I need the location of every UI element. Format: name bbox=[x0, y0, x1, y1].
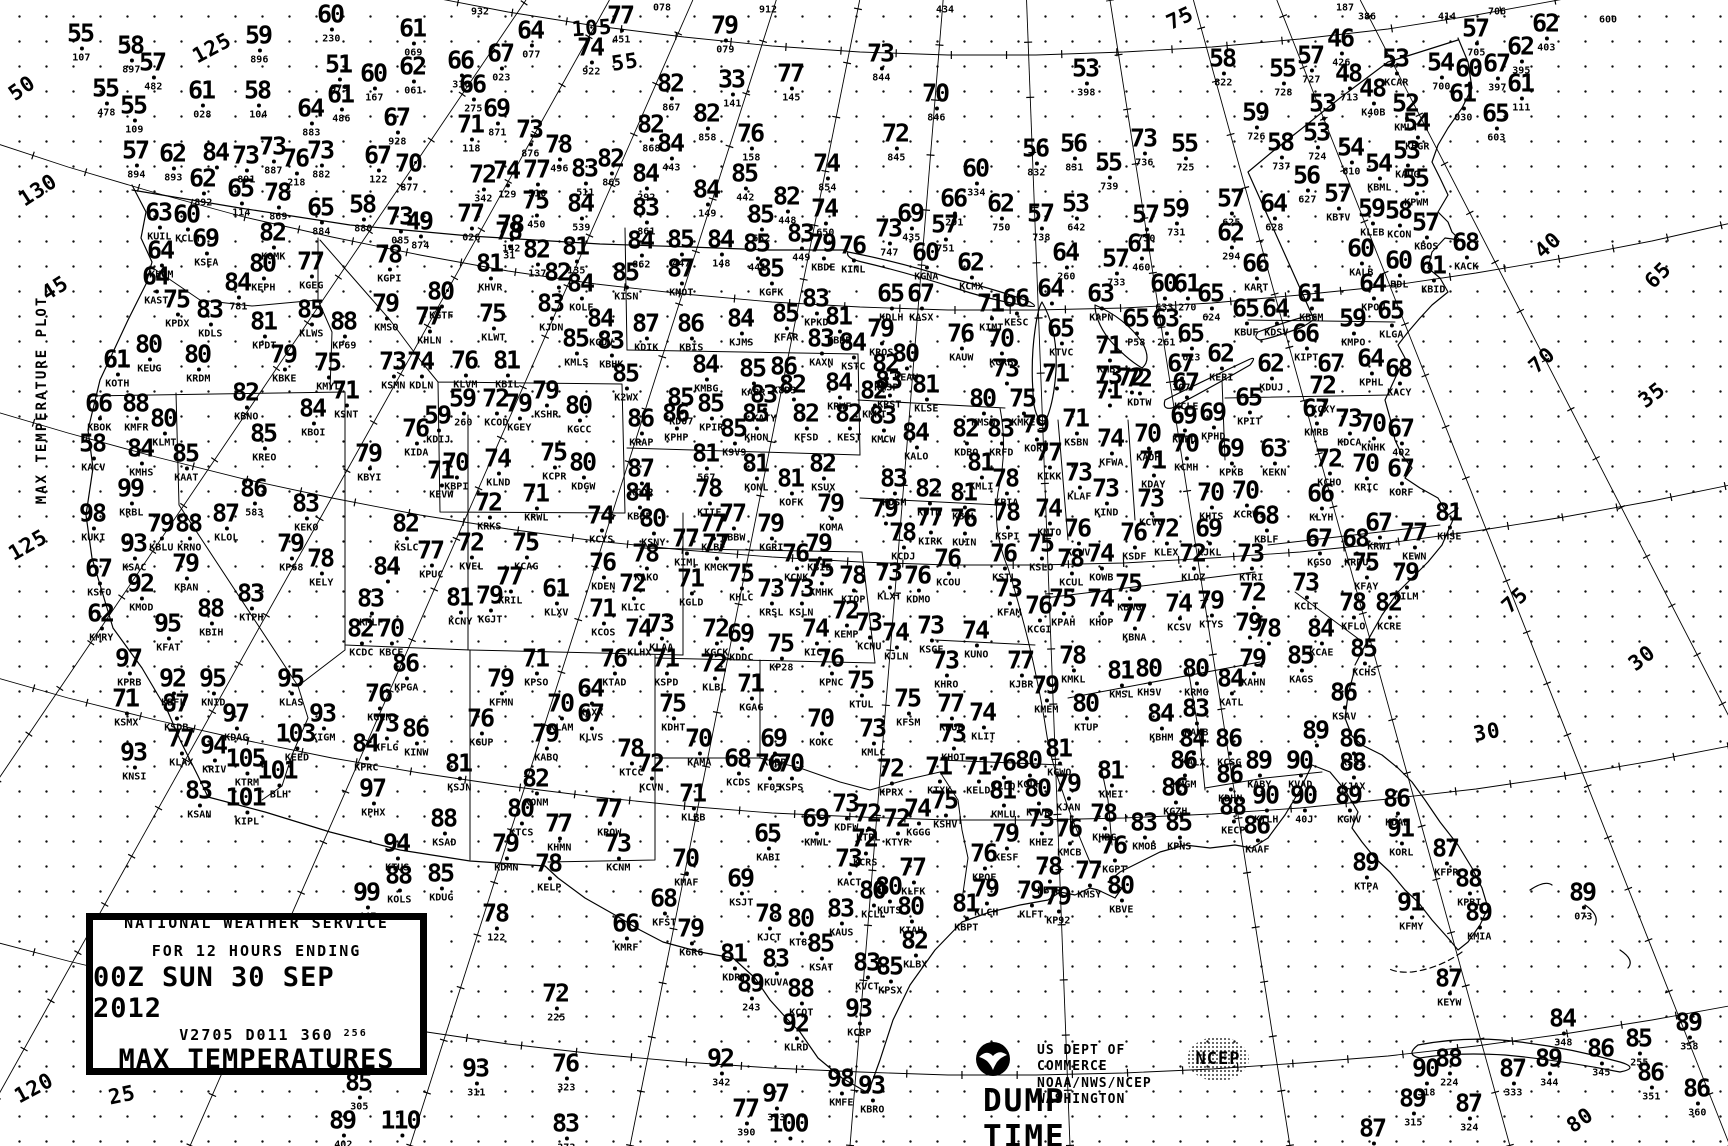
station: 88KPBI bbox=[1455, 866, 1481, 891]
station: 87KDIK bbox=[632, 311, 658, 336]
station-id: KGGG bbox=[906, 828, 930, 839]
station-max-temp: 79 bbox=[711, 13, 737, 38]
station-id: 877 bbox=[400, 183, 418, 194]
station-id: KLGA bbox=[1379, 330, 1403, 341]
station-id: KRBL bbox=[119, 508, 143, 519]
station-id: 727 bbox=[1302, 75, 1320, 86]
station-id: KGRI bbox=[759, 543, 783, 554]
station: 53KCAR bbox=[1382, 46, 1408, 71]
station-max-temp: 77 bbox=[523, 157, 549, 182]
station-max-temp: 54 bbox=[1403, 110, 1429, 135]
station: 68KACY bbox=[1385, 356, 1411, 381]
station-id: 344 bbox=[1540, 1078, 1558, 1089]
station-max-temp: 83 bbox=[185, 778, 211, 803]
station-max-temp: 79 bbox=[1054, 771, 1080, 796]
station-max-temp: 93 bbox=[120, 531, 146, 556]
station-max-temp: 76 bbox=[989, 750, 1015, 775]
station-max-temp: 79 bbox=[757, 511, 783, 536]
station-max-temp: 92 bbox=[159, 666, 185, 691]
station: 73KFAM bbox=[995, 576, 1021, 601]
station-max-temp: 93 bbox=[845, 996, 871, 1021]
station: 54700 bbox=[1427, 50, 1453, 75]
station: 82865 bbox=[597, 146, 623, 171]
station-id: KFST bbox=[652, 918, 676, 929]
station: 82KOMK bbox=[259, 220, 285, 245]
station-dot bbox=[788, 1137, 792, 1141]
station-max-temp: 84 bbox=[693, 177, 719, 202]
station-id: KMSO bbox=[374, 323, 398, 334]
station: 84781 bbox=[224, 270, 250, 295]
station: 92KLRD bbox=[782, 1011, 808, 1036]
station-max-temp: 65 bbox=[307, 195, 333, 220]
station: 66275 bbox=[459, 72, 485, 97]
station-id: 725 bbox=[1176, 163, 1194, 174]
station-id: 073 bbox=[1574, 912, 1592, 923]
station: 58822 bbox=[1209, 46, 1235, 71]
station: 68KBLF bbox=[1252, 503, 1278, 528]
station: 83KMOB bbox=[1130, 810, 1156, 835]
station: 95KNID bbox=[199, 666, 225, 691]
station-max-temp: 91 bbox=[1387, 816, 1413, 841]
station-max-temp: 69 bbox=[1195, 516, 1221, 541]
station: 82KCDC bbox=[347, 616, 373, 641]
station: 82KOTM bbox=[915, 476, 941, 501]
station: 61111 bbox=[1507, 71, 1533, 96]
station: 72 bbox=[1239, 580, 1265, 605]
station-id: KEUG bbox=[137, 364, 161, 375]
station-max-temp: 74 bbox=[969, 700, 995, 725]
station-id: 460 bbox=[1132, 263, 1150, 274]
station: 64260 bbox=[1052, 240, 1078, 265]
station-max-temp: 72 bbox=[1239, 580, 1265, 605]
station-max-temp: 61 bbox=[1127, 231, 1153, 256]
station-max-temp: 75 bbox=[727, 561, 753, 586]
station-id: BLH bbox=[270, 790, 288, 801]
station: 80KEUG bbox=[135, 332, 161, 357]
station: 85KAGS bbox=[1287, 643, 1313, 668]
station-id: KCDS bbox=[726, 778, 750, 789]
station: 55KPWM bbox=[1402, 166, 1428, 191]
station: 77KRUE bbox=[937, 691, 963, 716]
station-id: KBYI bbox=[357, 473, 381, 484]
station-id: KJCT bbox=[757, 933, 781, 944]
station: 62403 bbox=[1532, 11, 1558, 36]
station: 64883 bbox=[297, 96, 323, 121]
station: 76KPOE bbox=[970, 841, 996, 866]
station-id: KDUJ bbox=[1259, 383, 1283, 394]
station: 84KJMS bbox=[727, 306, 753, 331]
station-max-temp: 55 bbox=[1402, 166, 1428, 191]
station-max-temp: 86 bbox=[677, 311, 703, 336]
station-max-temp: 79 bbox=[172, 551, 198, 576]
station: 89073 bbox=[1569, 880, 1595, 905]
station-id: KHOP bbox=[1089, 618, 1113, 629]
station-id: KJDN bbox=[539, 323, 563, 334]
station: 64KPHL bbox=[1357, 346, 1383, 371]
station: 79KFMN bbox=[487, 666, 513, 691]
station-max-temp: 97 bbox=[222, 701, 248, 726]
station-id: KRWL bbox=[524, 513, 548, 524]
station-max-temp: 83 bbox=[827, 896, 853, 921]
side-label-text: MAX TEMPERATURE PLOT bbox=[34, 296, 50, 505]
station-max-temp: 62 bbox=[957, 250, 983, 275]
station-max-temp: 64 bbox=[297, 96, 323, 121]
station-max-temp: 79 bbox=[147, 511, 173, 536]
station-max-temp: 70 bbox=[395, 151, 421, 176]
station-id: KCVN bbox=[639, 783, 663, 794]
station-max-temp: 74 bbox=[1087, 541, 1113, 566]
station: 73736 bbox=[1130, 126, 1156, 151]
station-id: KAGS bbox=[1289, 675, 1313, 686]
station: 73KRSL bbox=[757, 576, 783, 601]
station: 89 bbox=[1302, 718, 1328, 743]
station-id: KCRE bbox=[1377, 622, 1401, 633]
station-max-temp: 62 bbox=[87, 601, 113, 626]
station: 93311 bbox=[462, 1056, 488, 1081]
station-max-temp: 57 bbox=[931, 212, 957, 237]
station-id: KMRY bbox=[89, 633, 113, 644]
station: 59KMPO bbox=[1339, 306, 1365, 331]
station: 74KLIT bbox=[969, 700, 995, 725]
station-max-temp: 64 bbox=[147, 238, 173, 263]
station-id: KISN bbox=[614, 292, 638, 303]
station-id: 351 bbox=[1642, 1092, 1660, 1103]
station-max-temp: 83 bbox=[237, 581, 263, 606]
station-id: KSDF bbox=[1122, 552, 1146, 563]
station-max-temp: 79 bbox=[1392, 560, 1418, 585]
station-id: KAAT bbox=[174, 473, 198, 484]
station-max-temp: 75 bbox=[1049, 586, 1075, 611]
station: 79KOMA bbox=[817, 491, 843, 516]
station: 61028 bbox=[188, 78, 214, 103]
station-id: KAKO bbox=[634, 573, 658, 584]
station-id: KCNM bbox=[606, 863, 630, 874]
station: 85442 bbox=[731, 161, 757, 186]
station-id: KDMN bbox=[494, 863, 518, 874]
station: 110 bbox=[380, 1108, 419, 1133]
station-id: KBID bbox=[1421, 285, 1445, 296]
station-id: 486 bbox=[332, 114, 350, 125]
station-max-temp: 89 bbox=[1569, 880, 1595, 905]
station: 59KDIJ bbox=[424, 403, 450, 428]
station: 81KBIL bbox=[493, 348, 519, 373]
station: 83KJDN bbox=[537, 291, 563, 316]
station-id: 122 bbox=[487, 933, 505, 944]
station: 86360 bbox=[1683, 1076, 1709, 1101]
station-id: 345 bbox=[1592, 1068, 1610, 1079]
station-id: KPUC bbox=[419, 570, 443, 581]
station-id: KLOL bbox=[214, 533, 238, 544]
station-id: KPIT bbox=[1237, 417, 1261, 428]
station-id: 225 bbox=[547, 1013, 565, 1024]
station: 61KLXV bbox=[542, 576, 568, 601]
station-max-temp: 73 bbox=[875, 560, 901, 585]
station-max-temp: 85 bbox=[747, 202, 773, 227]
station: 73KDCA bbox=[1335, 406, 1361, 431]
station-max-temp: 71 bbox=[977, 291, 1003, 316]
station: 81KMLU bbox=[989, 778, 1015, 803]
station-max-temp: 78 bbox=[375, 242, 401, 267]
station-max-temp: 73 bbox=[867, 41, 893, 66]
station-max-temp: 53 bbox=[1303, 120, 1329, 145]
station-id: 627 bbox=[1298, 195, 1316, 206]
station: 85KISN bbox=[612, 260, 638, 285]
station: 90KVAD bbox=[1286, 748, 1312, 773]
station: 91KFMY bbox=[1397, 890, 1423, 915]
station: 76KSDF bbox=[1120, 520, 1146, 545]
station-max-temp: 82 bbox=[392, 511, 418, 536]
station: 80KRDM bbox=[184, 342, 210, 367]
station-max-temp: 75 bbox=[540, 440, 566, 465]
station: 55478 bbox=[92, 76, 118, 101]
station-max-temp: 79 bbox=[505, 391, 531, 416]
station-id: KREO bbox=[252, 453, 276, 464]
station: 77KRIL bbox=[496, 564, 522, 589]
station-max-temp: 74 bbox=[484, 446, 510, 471]
station-id-label: 706 bbox=[1488, 7, 1506, 18]
station-max-temp: 79 bbox=[1032, 673, 1058, 698]
station-id: KDHT bbox=[661, 723, 685, 734]
station: 89KMIA bbox=[1465, 900, 1491, 925]
station-max-temp: 76 bbox=[782, 541, 808, 566]
station: 60334 bbox=[962, 156, 988, 181]
station-max-temp: 76 bbox=[365, 681, 391, 706]
station: 85KDUG bbox=[427, 861, 453, 886]
station: 65KABI bbox=[754, 821, 780, 846]
station: 76KCNK bbox=[782, 541, 808, 566]
station-max-temp: 81 bbox=[562, 234, 588, 259]
station: 53 bbox=[1309, 91, 1335, 116]
station-max-temp: 76 bbox=[1055, 816, 1081, 841]
station-id: KGNV bbox=[1337, 815, 1361, 826]
station-max-temp: 72 bbox=[469, 162, 495, 187]
station-id: 451 bbox=[612, 35, 630, 46]
station: 60230 bbox=[317, 2, 343, 27]
station-id: KINW bbox=[404, 748, 428, 759]
station-max-temp: 69 bbox=[1217, 436, 1243, 461]
station: 69KDDC bbox=[727, 621, 753, 646]
station-id: 642 bbox=[1067, 223, 1085, 234]
station: 49874 bbox=[406, 209, 432, 234]
station: 72KLBL bbox=[700, 651, 726, 676]
station-max-temp: 83 bbox=[807, 326, 833, 351]
station: 33141 bbox=[718, 67, 744, 92]
station-id: KDLS bbox=[198, 329, 222, 340]
station: 67KMRB bbox=[1302, 396, 1328, 421]
station-max-temp: 77 bbox=[545, 811, 571, 836]
station: 72KDTW bbox=[1125, 366, 1151, 391]
station-id: KLAF bbox=[1067, 492, 1091, 503]
station-max-temp: 80 bbox=[1072, 691, 1098, 716]
station-id: KHON bbox=[744, 433, 768, 444]
station: 59731 bbox=[1162, 196, 1188, 221]
station-max-temp: 89 bbox=[1302, 718, 1328, 743]
station-id: 739 bbox=[1100, 182, 1118, 193]
station-max-temp: 74 bbox=[802, 616, 828, 641]
station-max-temp: 46 bbox=[1327, 26, 1353, 51]
station: 79KJAN bbox=[1054, 771, 1080, 796]
station-max-temp: 81 bbox=[1045, 736, 1071, 761]
station: 81KGWO bbox=[1045, 736, 1071, 761]
station-max-temp: 69 bbox=[760, 726, 786, 751]
station-max-temp: 67 bbox=[1387, 416, 1413, 441]
station-max-temp: 71 bbox=[1095, 333, 1121, 358]
station-max-temp: 83 bbox=[632, 195, 658, 220]
station-id: KMCW bbox=[871, 435, 895, 446]
station-max-temp: 80 bbox=[639, 506, 665, 531]
station-max-temp: 61 bbox=[1449, 81, 1475, 106]
station-id: KGJT bbox=[478, 615, 502, 626]
station-max-temp: 48 bbox=[1335, 61, 1361, 86]
station-max-temp: 78 bbox=[1339, 590, 1365, 615]
station-max-temp: 78 bbox=[1090, 801, 1116, 826]
station-id: KMEI bbox=[1099, 790, 1123, 801]
station: 67KCLE bbox=[1172, 370, 1198, 395]
station-id: 880 bbox=[354, 224, 372, 235]
station: 79KTYS bbox=[1197, 588, 1223, 613]
legend-version: V2705 D011 360 256 bbox=[179, 1026, 333, 1044]
station-id: KCOD bbox=[484, 418, 508, 429]
station-id: KINL bbox=[841, 265, 865, 276]
station: 72342 bbox=[469, 162, 495, 187]
station: 70KGRB bbox=[987, 326, 1013, 351]
station-max-temp: 77 bbox=[937, 691, 963, 716]
legend-overprint-station: 256 bbox=[344, 1028, 368, 1039]
station-max-temp: 74 bbox=[493, 158, 519, 183]
station-id: KLAX bbox=[169, 758, 193, 769]
station-max-temp: 78 bbox=[839, 563, 865, 588]
station-id: KGAG bbox=[739, 703, 763, 714]
station: 81KOFK bbox=[777, 466, 803, 491]
station-max-temp: 84 bbox=[707, 227, 733, 252]
station-id: KPGA bbox=[394, 683, 418, 694]
station-id: 831 bbox=[1065, 163, 1083, 174]
station: 57730 bbox=[1132, 202, 1158, 227]
station: 85KSAT bbox=[807, 931, 833, 956]
station: 79K6R6 bbox=[677, 916, 703, 941]
station-id: KELD bbox=[966, 786, 990, 797]
side-label: MAX TEMPERATURE PLOT bbox=[14, 270, 70, 530]
station-max-temp: 86 bbox=[1216, 762, 1242, 787]
station: 84 bbox=[202, 140, 228, 165]
station-max-temp: 67 bbox=[907, 281, 933, 306]
station: 62KERI bbox=[1207, 341, 1233, 366]
station-id: KVEL bbox=[459, 562, 483, 573]
station-max-temp: 59 bbox=[1242, 100, 1268, 125]
station-id: KABQ bbox=[534, 753, 558, 764]
station-max-temp: 76 bbox=[589, 550, 615, 575]
station: 80KTCS bbox=[507, 796, 533, 821]
station-id: 358 bbox=[1680, 1042, 1698, 1053]
station-id: KPDX bbox=[165, 319, 189, 330]
station: 84862 bbox=[627, 228, 653, 253]
station-id: KERI bbox=[1209, 373, 1233, 384]
station-max-temp: 72 bbox=[1125, 366, 1151, 391]
station: 100 bbox=[768, 1111, 807, 1136]
station-id: KPRX bbox=[879, 788, 903, 799]
station-max-temp: 84 bbox=[1147, 701, 1173, 726]
station-id: 874 bbox=[411, 241, 429, 252]
station: 67397 bbox=[1483, 51, 1509, 76]
station: 76KLWV bbox=[1064, 516, 1090, 541]
station: 70KLAM bbox=[547, 691, 573, 716]
station: 71118 bbox=[457, 112, 483, 137]
station: 78869 bbox=[264, 180, 290, 205]
station-max-temp: 83 bbox=[292, 491, 318, 516]
station: 78KMKL bbox=[1059, 643, 1085, 668]
station-max-temp: 73 bbox=[1130, 126, 1156, 151]
station-max-temp: 75 bbox=[479, 301, 505, 326]
station-max-temp: 79 bbox=[487, 666, 513, 691]
station-max-temp: 87 bbox=[632, 311, 658, 336]
station-id: 449 bbox=[792, 253, 810, 264]
station-id: KPSO bbox=[524, 678, 548, 689]
station-id: KPNS bbox=[1167, 842, 1191, 853]
station-max-temp: 78 bbox=[495, 219, 521, 244]
station: 79KBAN bbox=[172, 551, 198, 576]
station-max-temp: 78 bbox=[545, 132, 571, 157]
station: 58KCON bbox=[1385, 198, 1411, 223]
station: 77KLAX bbox=[167, 726, 193, 751]
station-id: KGFK bbox=[759, 288, 783, 299]
station-max-temp: 74 bbox=[813, 151, 839, 176]
station-max-temp: 72 bbox=[882, 121, 908, 146]
station-max-temp: 77 bbox=[167, 726, 193, 751]
station: 72KCRS bbox=[851, 826, 877, 851]
station: 79KBKE bbox=[270, 342, 296, 367]
station-max-temp: 64 bbox=[1260, 191, 1286, 216]
station: 81567 bbox=[692, 441, 718, 466]
station: 78KCUL bbox=[1057, 546, 1083, 571]
station-id: KBLU bbox=[149, 543, 173, 554]
station: 67KRWI bbox=[1365, 510, 1391, 535]
station-max-temp: 88 bbox=[430, 806, 456, 831]
station-max-temp: 79 bbox=[1017, 878, 1043, 903]
station-id: 023 bbox=[492, 73, 510, 84]
station-max-temp: 79 bbox=[1239, 646, 1265, 671]
station-id: KBIH bbox=[199, 628, 223, 639]
station: 75KFAY bbox=[1352, 550, 1378, 575]
station-id: KLBB bbox=[681, 813, 705, 824]
station: 70KOKC bbox=[807, 706, 833, 731]
station: 80KHSV bbox=[1135, 656, 1161, 681]
station: 89402 bbox=[329, 1108, 355, 1133]
station-max-temp: 65 bbox=[1235, 385, 1261, 410]
station-max-temp: 72 bbox=[700, 651, 726, 676]
station-max-temp: 73 bbox=[1292, 570, 1318, 595]
station-max-temp: 59 bbox=[1162, 196, 1188, 221]
station-id: KPSX bbox=[878, 986, 902, 997]
station-max-temp: 76 bbox=[990, 541, 1016, 566]
station: 74KCYS bbox=[587, 503, 613, 528]
station-id: 333 bbox=[1504, 1088, 1522, 1099]
station-max-temp: 97 bbox=[359, 776, 385, 801]
station: 83KUVA bbox=[762, 946, 788, 971]
station: 53KAUG bbox=[1393, 138, 1419, 163]
station-max-temp: 70 bbox=[377, 616, 403, 641]
station-max-temp: 56 bbox=[1293, 163, 1319, 188]
station: 70KRIC bbox=[1352, 451, 1378, 476]
station-max-temp: 61 bbox=[1173, 271, 1199, 296]
station: 88KRNO bbox=[175, 511, 201, 536]
station-id: KONL bbox=[744, 483, 768, 494]
station-max-temp: 71 bbox=[332, 378, 358, 403]
station: 89KGNV bbox=[1335, 783, 1361, 808]
station-max-temp: 84 bbox=[127, 436, 153, 461]
station-max-temp: 75 bbox=[894, 686, 920, 711]
station: 77KGEG bbox=[297, 249, 323, 274]
legend-period: FOR 12 HOURS ENDING bbox=[152, 942, 362, 960]
